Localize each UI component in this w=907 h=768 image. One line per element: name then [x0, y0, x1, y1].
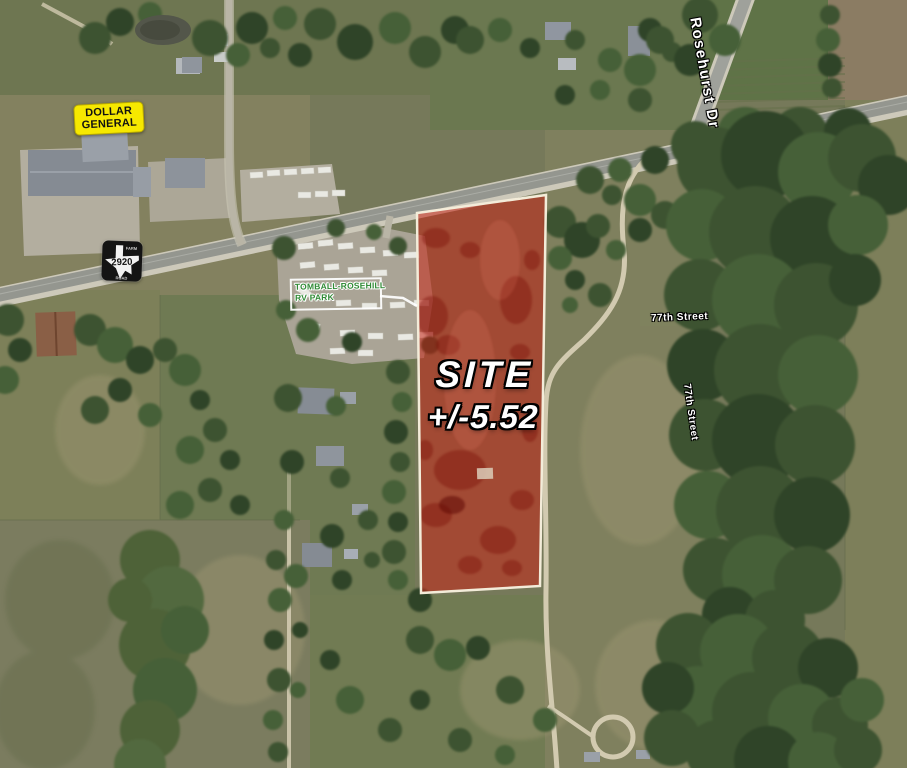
site-label-title: SITE [398, 356, 571, 393]
svg-text:2920: 2920 [111, 257, 133, 269]
texas-outline-icon: FARM 2920 ROAD [101, 240, 142, 281]
aerial-map: DOLLAR GENERAL FARM 2920 ROAD TOMBALL-RO… [0, 0, 907, 768]
rv-park-label-line2: RV PARK [295, 291, 377, 303]
rv-park-label-line1: TOMBALL-ROSEHILL [295, 280, 377, 292]
svg-text:FARM: FARM [126, 246, 138, 251]
site-label: SITE +/-5.52 [397, 356, 572, 433]
dollar-general-sign: DOLLAR GENERAL [73, 101, 145, 136]
structure-in-site [477, 468, 493, 480]
fm-2920-shield: FARM 2920 ROAD [101, 240, 142, 281]
svg-text:ROAD: ROAD [115, 275, 127, 280]
barn [35, 311, 77, 356]
dollar-general-label: DOLLAR GENERAL [81, 105, 137, 131]
pond [135, 15, 191, 45]
street-label-77th-street-upper: 77th Street [651, 311, 709, 324]
rv-park-label: TOMBALL-ROSEHILL RV PARK [290, 277, 383, 311]
site-label-area: +/-5.52 [397, 400, 570, 433]
